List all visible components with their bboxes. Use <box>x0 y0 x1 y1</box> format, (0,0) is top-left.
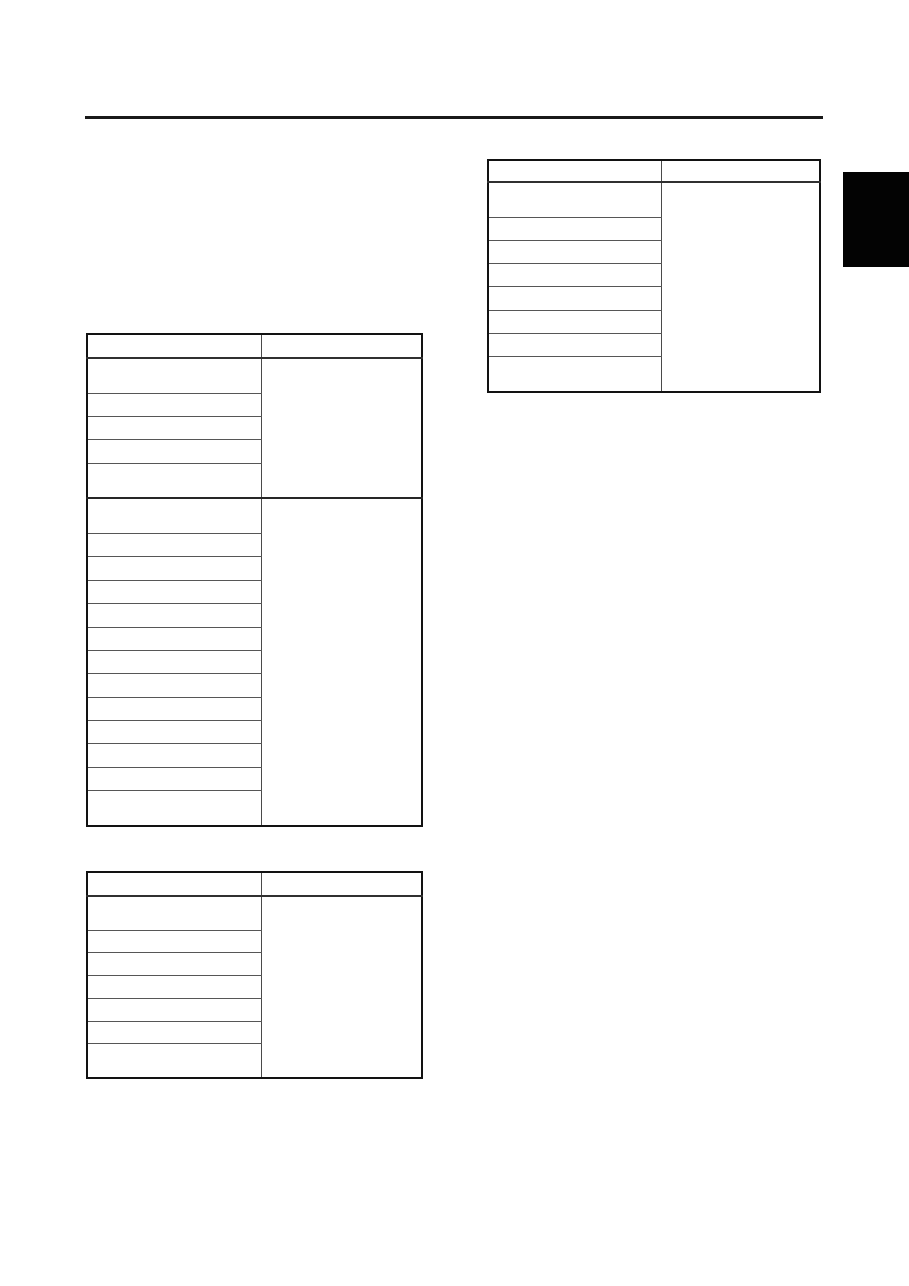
row-label-cell <box>488 217 661 240</box>
merged-value-cell <box>261 896 422 1078</box>
table-bottom-left <box>86 871 423 1079</box>
header-divider-rule <box>85 116 823 119</box>
table-left-large <box>86 333 423 827</box>
table-row <box>87 358 422 393</box>
table-row <box>87 498 422 533</box>
row-label-cell <box>488 182 661 217</box>
table-header-row <box>87 872 422 896</box>
row-label-cell <box>87 393 261 416</box>
table-top-right <box>487 159 821 393</box>
column-header <box>261 872 422 896</box>
row-label-cell <box>488 334 661 357</box>
table-slot-bottom-left <box>86 871 423 1079</box>
table-slot-left-large <box>86 333 423 827</box>
row-label-cell <box>87 930 261 953</box>
row-label-cell <box>87 674 261 697</box>
row-label-cell <box>87 440 261 463</box>
scanned-manual-page <box>0 0 909 1286</box>
merged-value-cell <box>661 182 820 392</box>
row-label-cell <box>87 791 261 826</box>
merged-value-cell <box>261 498 422 826</box>
row-label-cell <box>87 896 261 930</box>
column-header <box>261 334 422 358</box>
row-label-cell <box>87 744 261 767</box>
row-label-cell <box>488 240 661 263</box>
row-label-cell <box>87 767 261 790</box>
row-label-cell <box>488 287 661 310</box>
column-header <box>87 872 261 896</box>
merged-value-cell <box>261 358 422 498</box>
table-header-row <box>87 334 422 358</box>
row-label-cell <box>87 953 261 976</box>
row-label-cell <box>87 604 261 627</box>
table-slot-top-right <box>487 159 821 393</box>
row-label-cell <box>87 1021 261 1044</box>
table-row <box>488 182 820 217</box>
row-label-cell <box>87 976 261 999</box>
row-label-cell <box>87 998 261 1021</box>
row-label-cell <box>87 533 261 556</box>
row-label-cell <box>87 627 261 650</box>
column-header <box>661 160 820 182</box>
row-label-cell <box>87 358 261 393</box>
column-header <box>87 334 261 358</box>
row-label-cell <box>87 580 261 603</box>
row-label-cell <box>488 264 661 287</box>
table-row <box>87 896 422 930</box>
row-label-cell <box>87 697 261 720</box>
row-label-cell <box>87 416 261 439</box>
row-label-cell <box>87 463 261 498</box>
row-label-cell <box>87 721 261 744</box>
row-label-cell <box>488 310 661 333</box>
row-label-cell <box>87 1044 261 1078</box>
row-label-cell <box>87 498 261 533</box>
column-header <box>488 160 661 182</box>
row-label-cell <box>488 357 661 392</box>
table-header-row <box>488 160 820 182</box>
row-label-cell <box>87 650 261 673</box>
section-index-tab <box>843 172 909 267</box>
row-label-cell <box>87 557 261 580</box>
